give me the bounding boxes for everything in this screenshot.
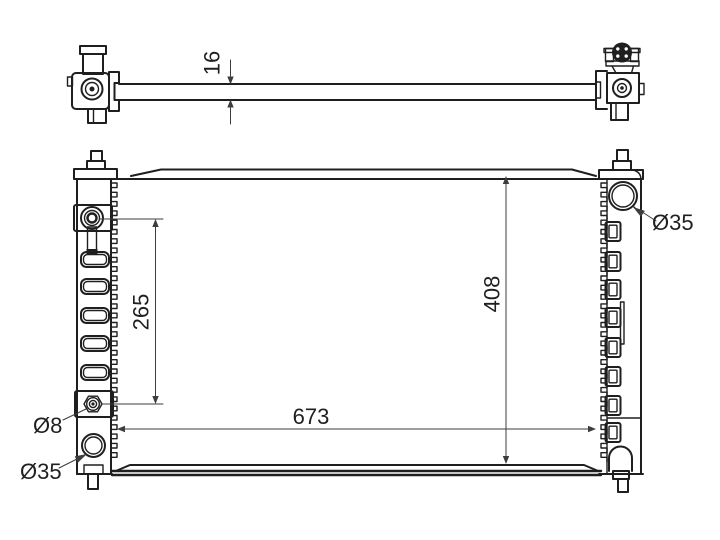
top-view-right-fitting [596, 43, 644, 121]
left-tank-bottom-pin [88, 474, 98, 489]
front-left-tank [74, 151, 117, 489]
label-inlet-pipe-text: Ø35 [652, 210, 694, 235]
front-right-tank [599, 150, 643, 492]
label-inlet-pipe: Ø35 [633, 207, 694, 235]
top-view-left-fitting [68, 46, 120, 123]
dim-core-thickness: 16 [200, 51, 234, 124]
label-outlet-pipe-text: Ø35 [20, 459, 62, 484]
dim-core-width-label: 673 [293, 404, 330, 429]
radiator-drawing-canvas: 16 [0, 0, 720, 540]
core-bottom-edge [117, 465, 597, 471]
front-view: 265 408 673 Ø8 Ø35 [20, 150, 694, 492]
drain-boss [609, 447, 632, 472]
label-oil-cooler-fitting-text: Ø8 [33, 413, 62, 438]
left-fitting-center-hole [90, 87, 95, 92]
right-tank-bottom-pin [618, 479, 628, 492]
right-tank-slots [606, 222, 621, 442]
label-oil-cooler-fitting: Ø8 [33, 409, 86, 438]
right-tank-top-pin [617, 150, 628, 161]
top-view-core-bar [119, 84, 596, 100]
left-tank-top-pin [91, 151, 102, 161]
dim-core-height: 408 [480, 176, 510, 464]
dim-core-thickness-label: 16 [200, 51, 225, 75]
dim-core-width: 673 [117, 404, 596, 432]
core-top-edge [131, 170, 596, 177]
top-view: 16 [68, 43, 645, 125]
filler-cap-icon [612, 43, 632, 63]
dim-port-spacing-label: 265 [129, 294, 154, 331]
radiator-drawing: 16 [0, 0, 720, 540]
left-tank-slots [81, 252, 109, 380]
inlet-pipe [609, 182, 637, 210]
dim-core-height-label: 408 [480, 276, 505, 313]
